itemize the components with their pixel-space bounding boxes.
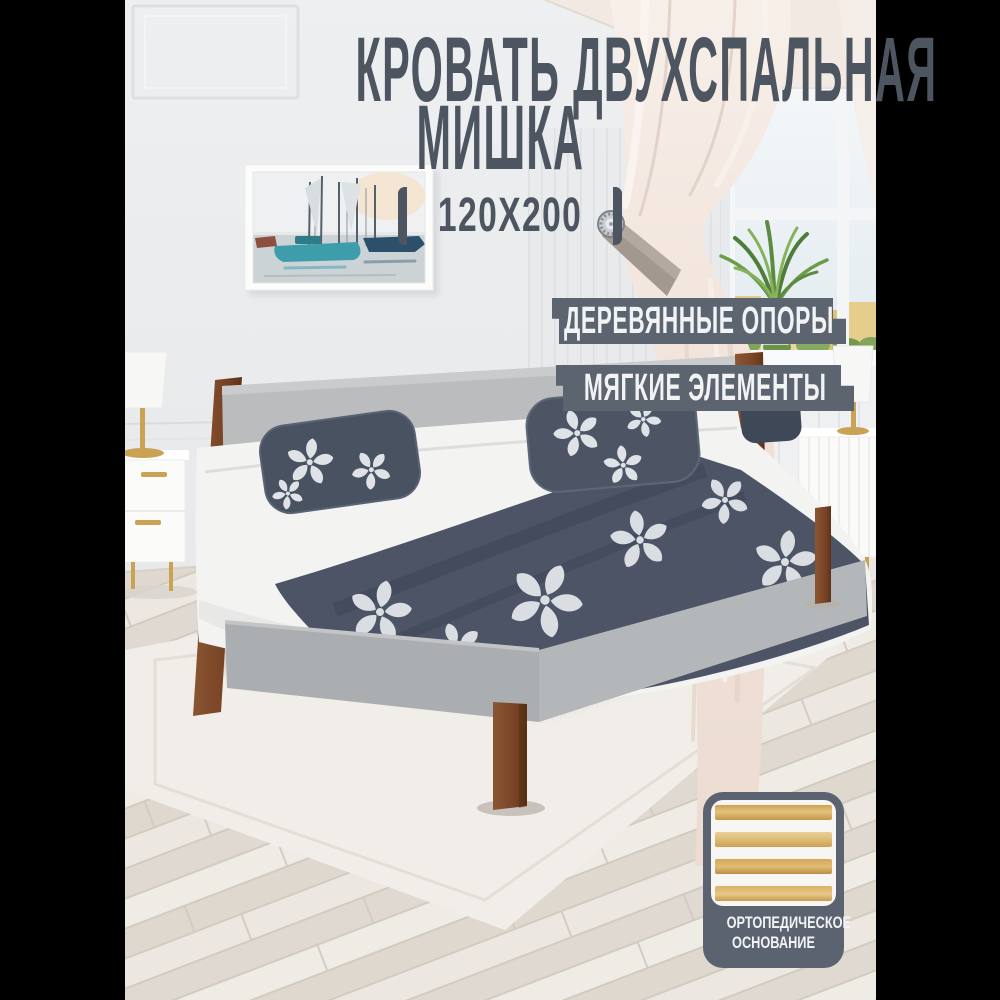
slat bbox=[715, 859, 832, 874]
orthopedic-base-badge: ОРТОПЕДИЧЕСКОЕ ОСНОВАНИЕ bbox=[703, 792, 844, 968]
feature-badge-wooden-supports-label: ДЕРЕВЯННЫЕ ОПОРЫ bbox=[564, 302, 834, 340]
feature-badge-soft-elements: МЯГКИЕ ЭЛЕМЕНТЫ bbox=[556, 365, 854, 411]
feature-badge-soft-elements-label: МЯГКИЕ ЭЛЕМЕНТЫ bbox=[584, 369, 827, 407]
crop-bracket-right-icon bbox=[613, 187, 622, 245]
slat bbox=[715, 832, 832, 847]
title-line-2-text: МИШКА bbox=[416, 92, 584, 184]
size-badge: 120X200 bbox=[398, 184, 600, 248]
slat bbox=[715, 805, 832, 820]
orthopedic-base-caption-line1: ОРТОПЕДИЧЕСКОЕ bbox=[727, 913, 821, 933]
drawer-handle bbox=[141, 472, 167, 477]
size-label: 120X200 bbox=[438, 192, 582, 240]
crop-bracket-left-icon bbox=[398, 187, 407, 245]
bed-slats-icon bbox=[711, 800, 836, 906]
window-muntin-horizontal bbox=[735, 208, 876, 220]
orthopedic-base-caption-line2: ОСНОВАНИЕ bbox=[727, 933, 821, 953]
orthopedic-base-caption: ОРТОПЕДИЧЕСКОЕ ОСНОВАНИЕ bbox=[711, 913, 836, 954]
slat bbox=[715, 886, 832, 901]
feature-badge-wooden-supports: ДЕРЕВЯННЫЕ ОПОРЫ bbox=[552, 298, 846, 344]
drawer-handle bbox=[135, 520, 161, 525]
bed-leg-right bbox=[815, 506, 831, 604]
product-image: КРОВАТЬ ДВУХСПАЛЬНАЯ МИШКА 120X200 ДЕРЕВ… bbox=[0, 0, 1000, 1000]
title-line-2: МИШКА bbox=[0, 92, 1000, 184]
